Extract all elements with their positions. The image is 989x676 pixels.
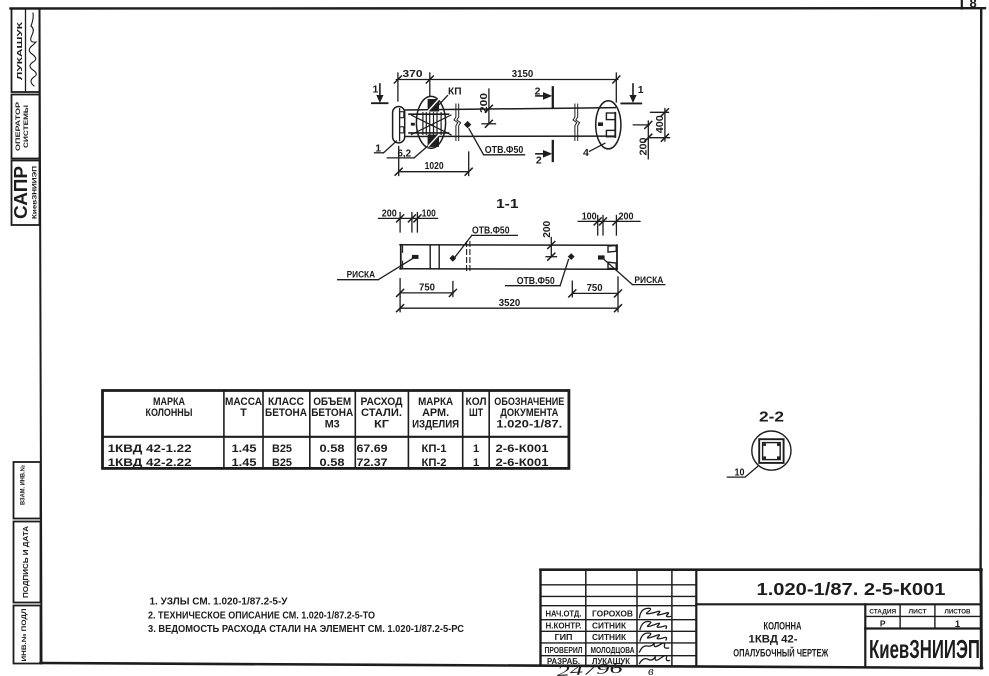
svg-text:1-1: 1-1 bbox=[496, 196, 519, 211]
svg-text:200: 200 bbox=[382, 208, 397, 220]
svg-text:БЕТОНА: БЕТОНА bbox=[265, 407, 307, 419]
svg-text:ОПЕРАТОР: ОПЕРАТОР bbox=[15, 102, 22, 151]
svg-text:400: 400 bbox=[654, 115, 666, 133]
svg-text:АРМ.: АРМ. bbox=[422, 407, 449, 419]
svg-text:ОТВ.Ф50: ОТВ.Ф50 bbox=[472, 225, 510, 237]
svg-text:Н.КОНТР.: Н.КОНТР. bbox=[546, 621, 582, 630]
svg-text:КП-2: КП-2 bbox=[422, 457, 447, 469]
svg-text:100: 100 bbox=[422, 208, 436, 220]
svg-text:ЛИСТ: ЛИСТ bbox=[909, 609, 928, 616]
svg-text:100: 100 bbox=[582, 211, 597, 223]
svg-text:2-6-К001: 2-6-К001 bbox=[496, 457, 549, 469]
svg-text:КЛАСС: КЛАСС bbox=[268, 396, 304, 408]
svg-text:ГОРОХОВ: ГОРОХОВ bbox=[592, 610, 633, 619]
svg-text:НАЧ.ОТД.: НАЧ.ОТД. bbox=[546, 610, 582, 619]
svg-text:1: 1 bbox=[373, 84, 379, 96]
svg-text:САПР: САПР bbox=[11, 166, 31, 219]
svg-text:РАСХОД: РАСХОД bbox=[361, 396, 403, 408]
svg-text:200: 200 bbox=[478, 93, 490, 113]
svg-text:ПРОВЕРИЛ: ПРОВЕРИЛ bbox=[545, 646, 583, 655]
svg-text:ЛИСТОВ: ЛИСТОВ bbox=[945, 609, 971, 616]
svg-text:2-6-К001: 2-6-К001 bbox=[496, 443, 549, 455]
svg-text:0.58: 0.58 bbox=[320, 443, 345, 455]
svg-text:ПОДПИСЬ И ДАТА: ПОДПИСЬ И ДАТА bbox=[23, 526, 30, 598]
svg-text:200: 200 bbox=[619, 210, 634, 222]
svg-text:1.45: 1.45 bbox=[232, 443, 257, 455]
svg-text:КОЛОННА: КОЛОННА bbox=[764, 621, 802, 633]
svg-text:КП: КП bbox=[448, 85, 462, 97]
svg-text:4: 4 bbox=[583, 147, 589, 159]
svg-text:ИНВ.№ ПОДЛ: ИНВ.№ ПОДЛ bbox=[21, 609, 28, 662]
svg-text:3520: 3520 bbox=[499, 297, 521, 309]
svg-text:СИСТЕМЫ: СИСТЕМЫ bbox=[23, 105, 30, 148]
svg-text:1. УЗЛЫ СМ. 1.020-1/87.2-5-У: 1. УЗЛЫ СМ. 1.020-1/87.2-5-У bbox=[150, 596, 288, 608]
svg-text:МАРКА: МАРКА bbox=[418, 396, 453, 408]
svg-text:КиевЗНИИЭП: КиевЗНИИЭП bbox=[869, 634, 980, 664]
svg-text:КОЛ: КОЛ bbox=[466, 396, 487, 408]
svg-text:1КВД 42-1.22: 1КВД 42-1.22 bbox=[108, 443, 192, 455]
svg-text:СТАЛИ.: СТАЛИ. bbox=[361, 407, 402, 419]
svg-text:БЕТОНА: БЕТОНА bbox=[311, 407, 353, 419]
svg-text:М3: М3 bbox=[325, 419, 340, 431]
svg-text:200: 200 bbox=[541, 221, 553, 238]
svg-text:1.020-1/87. 2-5-К001: 1.020-1/87. 2-5-К001 bbox=[757, 579, 946, 599]
svg-text:В25: В25 bbox=[272, 457, 292, 469]
svg-text:200: 200 bbox=[637, 137, 649, 155]
svg-text:ВЗАМ. ИНВ.№: ВЗАМ. ИНВ.№ bbox=[20, 465, 27, 505]
svg-text:ОПАЛУБОЧНЫЙ ЧЕРТЕЖ: ОПАЛУБОЧНЫЙ ЧЕРТЕЖ bbox=[733, 647, 828, 660]
svg-text:ОТВ.Ф50: ОТВ.Ф50 bbox=[485, 144, 524, 156]
svg-text:72.37: 72.37 bbox=[357, 457, 388, 469]
svg-text:ДОКУМЕНТА: ДОКУМЕНТА bbox=[500, 407, 558, 419]
svg-text:1: 1 bbox=[955, 619, 961, 630]
svg-text:1020: 1020 bbox=[425, 160, 444, 172]
svg-text:ШТ: ШТ bbox=[469, 407, 483, 419]
svg-text:ГИП: ГИП bbox=[555, 633, 573, 642]
svg-text:СИТНИК: СИТНИК bbox=[592, 621, 627, 630]
svg-text:СТАДИЯ: СТАДИЯ bbox=[869, 609, 896, 616]
svg-text:МАССА: МАССА bbox=[225, 396, 262, 408]
svg-text:750: 750 bbox=[419, 282, 435, 294]
svg-text:КП-1: КП-1 bbox=[422, 443, 447, 455]
svg-text:1.45: 1.45 bbox=[232, 457, 257, 469]
svg-text:370: 370 bbox=[403, 68, 423, 80]
svg-text:ОТВ.Ф50: ОТВ.Ф50 bbox=[517, 275, 555, 287]
svg-text:2-2: 2-2 bbox=[759, 410, 784, 426]
svg-text:КОЛОННЫ: КОЛОННЫ bbox=[146, 407, 193, 419]
svg-text:8: 8 bbox=[970, 0, 977, 11]
svg-text:ИЗДЕЛИЯ: ИЗДЕЛИЯ bbox=[412, 419, 459, 431]
svg-text:РИСКА: РИСКА bbox=[634, 275, 663, 286]
svg-text:3. ВЕДОМОСТЬ РАСХОДА СТАЛИ НА: 3. ВЕДОМОСТЬ РАСХОДА СТАЛИ НА ЭЛЕМЕНТ СМ… bbox=[148, 623, 464, 635]
svg-text:2: 2 bbox=[536, 155, 542, 167]
svg-text:67.69: 67.69 bbox=[357, 443, 388, 455]
svg-text:В25: В25 bbox=[272, 443, 292, 455]
svg-text:СИТНИК: СИТНИК bbox=[592, 633, 627, 642]
svg-text:0.58: 0.58 bbox=[320, 457, 345, 469]
svg-text:3150: 3150 bbox=[512, 68, 534, 80]
svg-text:ОБЪЕМ: ОБЪЕМ bbox=[313, 396, 351, 408]
svg-text:750: 750 bbox=[587, 282, 603, 294]
svg-text:Т: Т bbox=[240, 407, 247, 419]
svg-text:ЛУКАШУК: ЛУКАШУК bbox=[15, 21, 24, 80]
svg-text:2. ТЕХНИЧЕСКОЕ ОПИСАНИЕ СМ. 1.: 2. ТЕХНИЧЕСКОЕ ОПИСАНИЕ СМ. 1.020-1/87.2… bbox=[148, 610, 375, 622]
svg-text:ОБОЗНАЧЕНИЕ: ОБОЗНАЧЕНИЕ bbox=[494, 396, 564, 408]
svg-text:1: 1 bbox=[473, 443, 479, 455]
svg-text:КГ: КГ bbox=[374, 419, 390, 431]
svg-text:КиевЗНИИЭП: КиевЗНИИЭП bbox=[32, 166, 39, 219]
svg-text:Р: Р bbox=[880, 618, 886, 628]
svg-text:24796: 24796 bbox=[556, 660, 624, 676]
svg-text:1КВД 42-2.22: 1КВД 42-2.22 bbox=[108, 457, 192, 469]
svg-text:МОЛОДЦОВА: МОЛОДЦОВА bbox=[591, 646, 635, 655]
svg-text:МАРКА: МАРКА bbox=[153, 396, 185, 408]
svg-text:10: 10 bbox=[735, 468, 745, 479]
svg-text:РИСКА: РИСКА bbox=[347, 270, 376, 281]
svg-text:1: 1 bbox=[638, 84, 644, 96]
svg-text:1.020-1/87.: 1.020-1/87. bbox=[496, 419, 562, 431]
svg-text:1КВД 42-: 1КВД 42- bbox=[749, 633, 798, 645]
svg-text:в: в bbox=[648, 663, 654, 676]
svg-text:1: 1 bbox=[473, 457, 479, 469]
